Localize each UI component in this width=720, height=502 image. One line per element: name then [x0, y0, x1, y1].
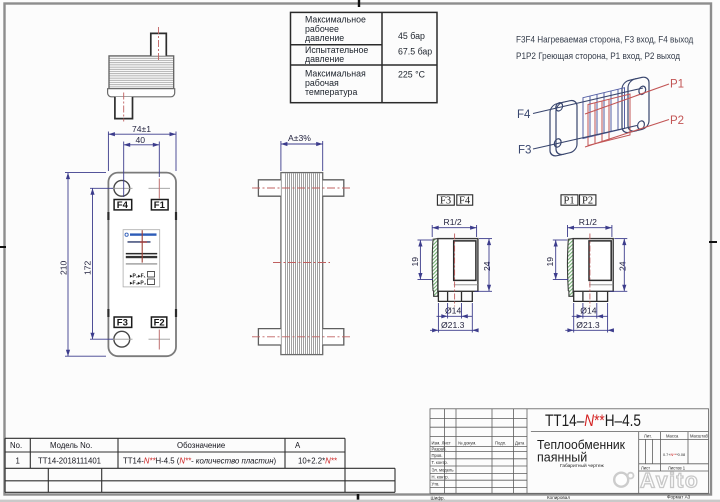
svg-text:F1: F1 [154, 200, 166, 211]
svg-text:F3F4 Нагреваемая сторона, F3 в: F3F4 Нагреваемая сторона, F3 вход, F4 вы… [516, 33, 694, 44]
svg-text:Дата: Дата [515, 441, 525, 446]
svg-text:Т. контр.: Т. контр. [432, 460, 448, 465]
svg-text:210: 210 [59, 260, 69, 275]
svg-text:Пров.: Пров. [432, 453, 443, 458]
svg-text:Avito: Avito [640, 470, 699, 493]
svg-text:Ø21.3: Ø21.3 [441, 320, 465, 330]
svg-text:P2: P2 [582, 196, 593, 207]
svg-text:P1P2 Греющая сторона, P1 вход,: P1P2 Греющая сторона, P1 вход, P2 выход [516, 50, 680, 61]
svg-text:F3: F3 [518, 145, 531, 157]
svg-text:Шифр.: Шифр. [431, 496, 445, 501]
svg-text:Модель No.: Модель No. [50, 441, 92, 450]
svg-text:Масштаб: Масштаб [690, 434, 709, 439]
svg-text:74±1: 74±1 [132, 124, 151, 134]
svg-text:Масса: Масса [666, 434, 679, 439]
svg-text:Изм. Лист: Изм. Лист [432, 441, 451, 446]
svg-text:давление: давление [305, 54, 344, 64]
svg-text:Лит.: Лит. [644, 434, 652, 439]
svg-text:ТТ14–N**Н–4.5: ТТ14–N**Н–4.5 [545, 412, 641, 430]
svg-text:Эл. модель: Эл. модель [432, 468, 455, 473]
svg-text:F2: F2 [154, 318, 165, 329]
svg-text:F3: F3 [117, 318, 128, 329]
svg-text:Разраб.: Разраб. [432, 447, 447, 452]
svg-text:R1/2: R1/2 [444, 217, 462, 227]
svg-text:Копировал: Копировал [547, 495, 570, 500]
svg-text:24: 24 [482, 261, 492, 271]
svg-text:давление: давление [305, 33, 344, 43]
svg-text:Подп.: Подп. [495, 441, 506, 446]
svg-text:67.5 бар: 67.5 бар [398, 47, 432, 57]
svg-text:F3: F3 [440, 196, 451, 207]
svg-text:паянный: паянный [537, 451, 587, 465]
svg-text:A±3%: A±3% [288, 133, 311, 143]
svg-text:P2: P2 [670, 115, 684, 127]
svg-text:1: 1 [16, 457, 20, 466]
svg-text:температура: температура [305, 87, 357, 97]
svg-text:Утв.: Утв. [432, 482, 440, 487]
svg-text:№ докум.: № докум. [458, 441, 476, 446]
svg-text:45 бар: 45 бар [398, 31, 425, 41]
svg-text:40: 40 [136, 135, 146, 145]
svg-text:ТТ14-N**H-4.5 (N**- количеств: ТТ14-N**H-4.5 (N**- количество пластин) [123, 457, 277, 466]
svg-text:19: 19 [410, 257, 420, 267]
svg-text:F4: F4 [117, 200, 129, 211]
svg-text:Обозначение: Обозначение [177, 441, 225, 450]
svg-text:172: 172 [83, 260, 93, 275]
svg-text:▸P₂▸F₁: ▸P₂▸F₁ [129, 274, 146, 280]
svg-text:225 °C: 225 °C [398, 69, 426, 79]
svg-text:P1: P1 [670, 79, 684, 91]
svg-text:Габаритный чертеж: Габаритный чертеж [560, 462, 604, 469]
svg-text:A: A [295, 441, 301, 450]
svg-text:TT14-2018111401: TT14-2018111401 [38, 457, 101, 466]
svg-text:Формат А3: Формат А3 [667, 495, 691, 500]
svg-text:▸F₃▸P₄: ▸F₃▸P₄ [129, 281, 147, 287]
svg-text:10+2.2*N**: 10+2.2*N** [298, 457, 338, 466]
svg-text:No.: No. [10, 441, 22, 450]
svg-text:F4: F4 [459, 196, 471, 207]
svg-text:F4: F4 [517, 109, 531, 121]
svg-text:P1: P1 [564, 196, 575, 207]
svg-text:0.7+N***0.08: 0.7+N***0.08 [663, 453, 685, 457]
svg-text:Н. контр.: Н. контр. [432, 475, 449, 480]
